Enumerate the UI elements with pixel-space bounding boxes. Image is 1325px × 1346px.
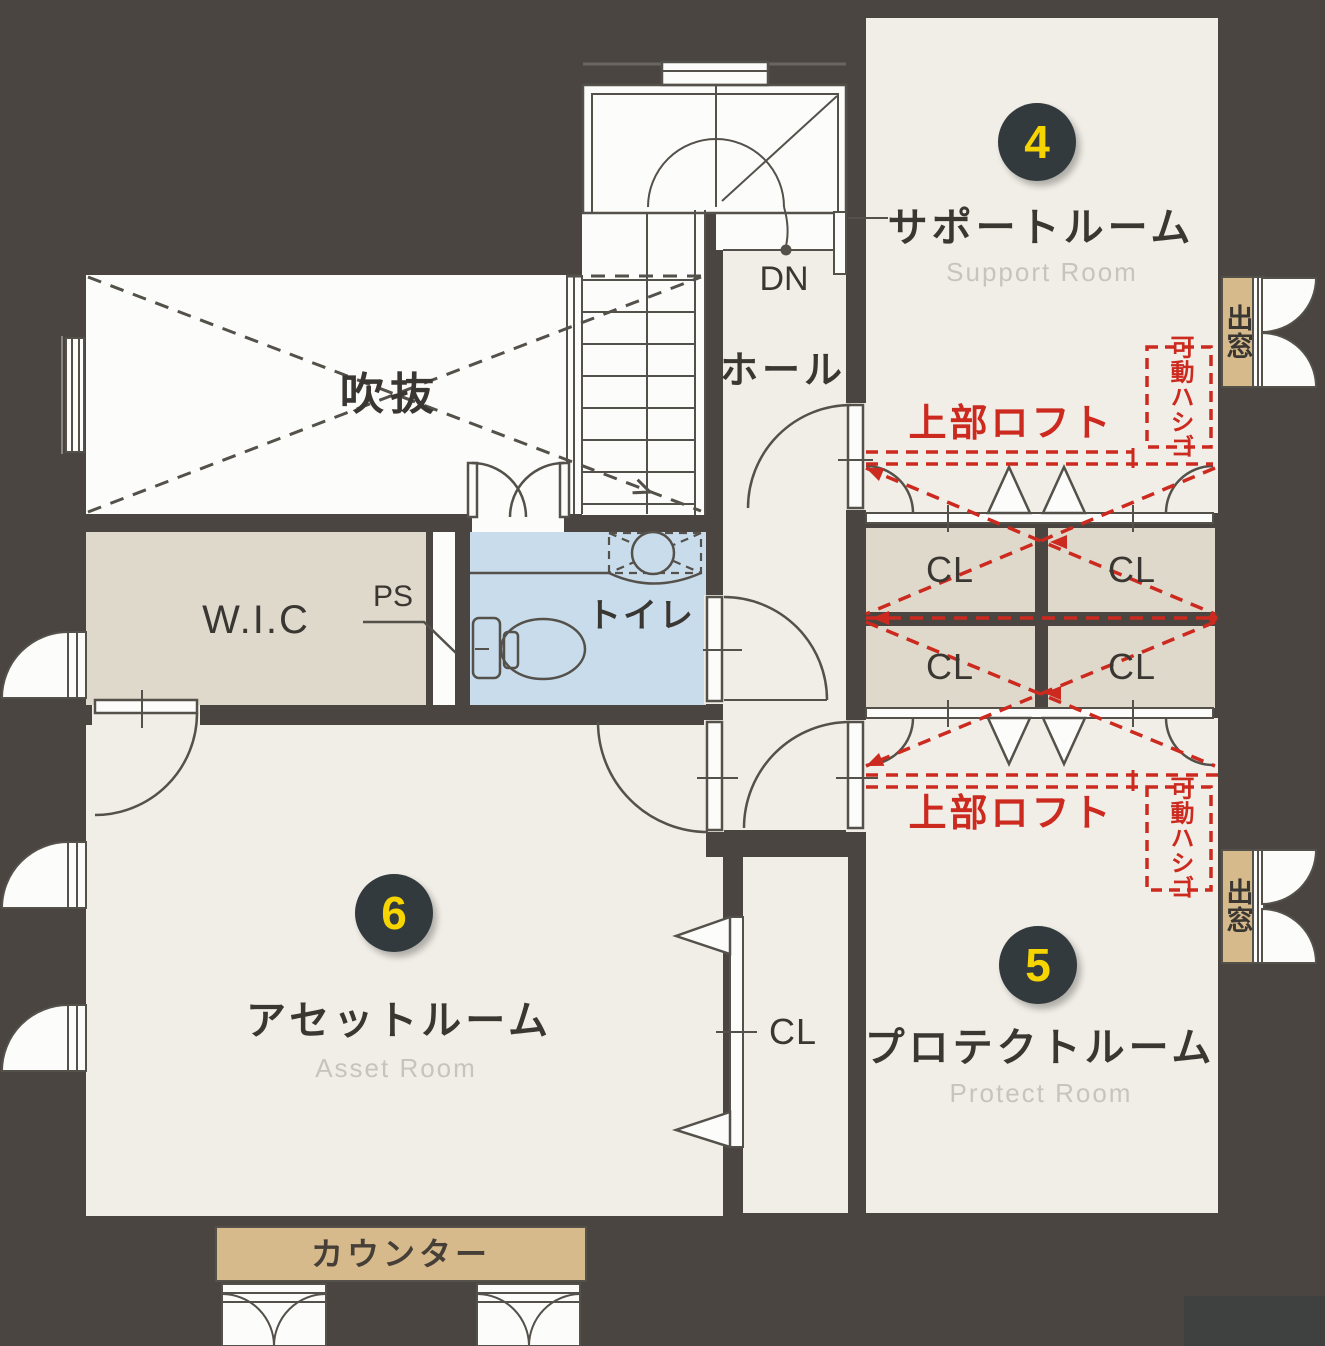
stair-top-nook <box>662 62 768 85</box>
closet-label-br: CL <box>1108 649 1156 685</box>
closet-label-tl: CL <box>926 552 974 588</box>
closet-label-bl: CL <box>926 649 974 685</box>
hall-floor <box>723 250 846 830</box>
asset-room-badge: 6 <box>355 874 433 952</box>
protect-room-label: プロテクトルーム <box>865 1028 1216 1068</box>
stair-run <box>582 213 705 515</box>
stair-exit <box>716 213 846 250</box>
bay-window-label-top: 出窓 <box>1224 304 1251 360</box>
dn-label: DN <box>759 262 808 296</box>
basin-icon <box>632 532 674 574</box>
closet-label-bottom: CL <box>769 1014 817 1050</box>
closet-label-tr: CL <box>1108 552 1156 588</box>
ps-label: PS <box>373 582 413 612</box>
floor-plan: 吹抜 ホール DN W.I.C PS トイレ 4 サポートルーム Support… <box>0 0 1325 1346</box>
bottom-window <box>477 1284 580 1346</box>
movable-ladder-label-bottom: 可動ハシゴ <box>1167 776 1191 901</box>
void-label: 吹抜 <box>340 373 440 417</box>
bottom-window <box>222 1284 326 1346</box>
movable-ladder-label-top: 可動ハシゴ <box>1167 335 1191 460</box>
void-floor <box>86 275 567 514</box>
protect-room-label-en: Protect Room <box>950 1080 1133 1106</box>
support-room-number: 4 <box>1024 115 1050 169</box>
asset-room-label: アセットルーム <box>246 1001 552 1041</box>
upper-loft-label-bottom: 上部ロフト <box>908 795 1113 833</box>
asset-room-number: 6 <box>381 886 407 940</box>
support-room-badge: 4 <box>998 103 1076 181</box>
background-shade <box>1184 1296 1325 1346</box>
support-room-label-en: Support Room <box>946 259 1138 285</box>
toilet-label: トイレ <box>587 599 695 633</box>
bay-window-label-bottom: 出窓 <box>1224 878 1251 934</box>
protect-room-badge: 5 <box>999 926 1077 1004</box>
asset-room-label-en: Asset Room <box>315 1055 477 1081</box>
protect-room-number: 5 <box>1025 938 1051 992</box>
wic-label: W.I.C <box>202 600 310 640</box>
stair-rail-end <box>834 212 846 274</box>
support-room-label: サポートルーム <box>888 208 1195 248</box>
counter-label: カウンター <box>311 1238 491 1270</box>
hall-label: ホール <box>720 352 846 390</box>
ps-shaft <box>433 532 455 705</box>
stair-landing <box>583 85 846 213</box>
upper-loft-label-top: 上部ロフト <box>908 405 1113 443</box>
